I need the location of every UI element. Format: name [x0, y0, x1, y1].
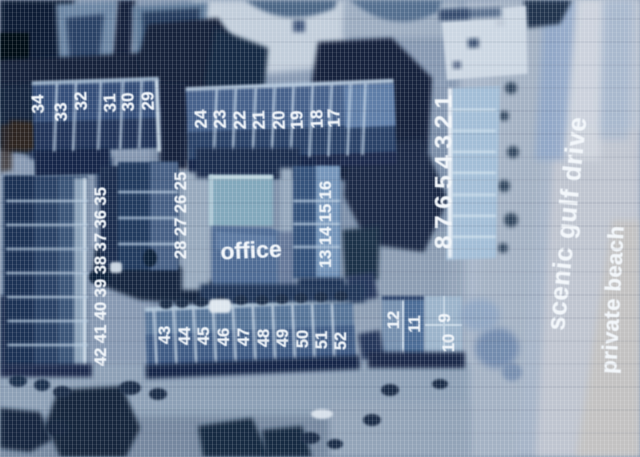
svg-text:20: 20	[269, 110, 289, 130]
svg-text:29: 29	[138, 91, 158, 111]
svg-text:office: office	[220, 236, 282, 265]
svg-text:42 41 40 39 38 37 36 35: 42 41 40 39 38 37 36 35	[92, 187, 110, 366]
svg-text:23: 23	[210, 109, 230, 129]
svg-text:28 27 26 25: 28 27 26 25	[172, 172, 190, 259]
svg-text:30: 30	[118, 92, 138, 112]
svg-text:51: 51	[313, 331, 331, 349]
svg-text:50: 50	[294, 330, 312, 348]
svg-text:47: 47	[235, 328, 253, 346]
svg-text:43: 43	[156, 326, 174, 344]
svg-text:8 7 6 5 4 3 2 1: 8 7 6 5 4 3 2 1	[431, 95, 458, 249]
svg-text:12: 12	[385, 311, 403, 329]
svg-text:48: 48	[255, 329, 273, 347]
svg-text:52: 52	[332, 332, 350, 350]
svg-text:32: 32	[71, 91, 91, 111]
svg-text:49: 49	[274, 329, 292, 347]
svg-text:17: 17	[324, 108, 344, 128]
svg-text:45: 45	[195, 327, 213, 345]
svg-text:19: 19	[287, 110, 307, 130]
svg-text:11: 11	[406, 315, 424, 332]
svg-text:46: 46	[215, 328, 233, 346]
svg-text:33: 33	[51, 102, 71, 122]
svg-text:21: 21	[249, 110, 269, 130]
svg-text:44: 44	[176, 326, 194, 345]
svg-text:22: 22	[230, 110, 250, 130]
svg-text:13 14 15 16: 13 14 15 16	[317, 181, 335, 268]
svg-text:24: 24	[191, 109, 211, 129]
svg-text:9: 9	[436, 313, 454, 322]
svg-text:34: 34	[28, 94, 48, 114]
svg-text:31: 31	[100, 93, 120, 113]
svg-text:10: 10	[440, 334, 458, 352]
